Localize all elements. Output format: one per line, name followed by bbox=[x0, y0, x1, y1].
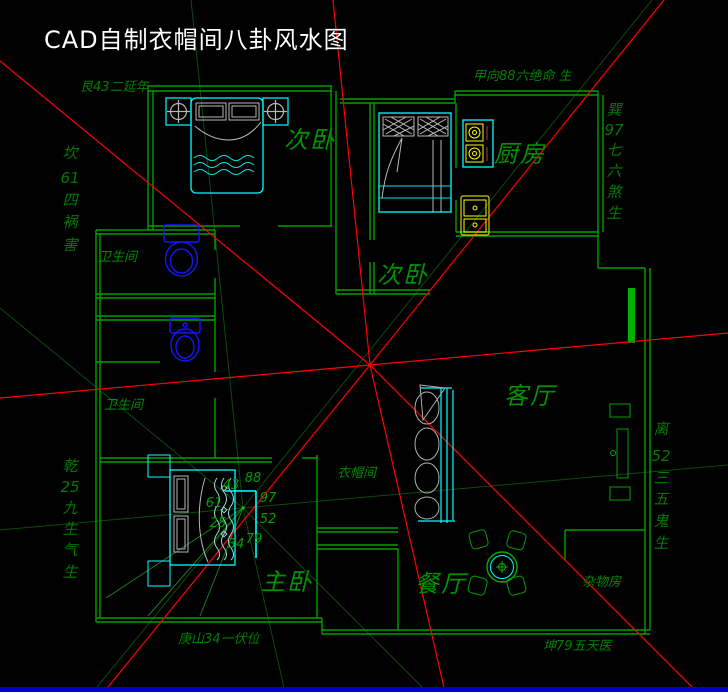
compass-label-li-3: 五 bbox=[653, 490, 669, 508]
room-label-bath-lower: 卫生间 bbox=[104, 398, 145, 413]
bagua-number-34: 34 bbox=[228, 537, 245, 552]
room-label-storage: 杂物房 bbox=[582, 575, 622, 590]
compass-label-li-2: 三 bbox=[653, 469, 669, 487]
room-label-dining: 餐厅 bbox=[415, 570, 469, 598]
compass-label-qian-0: 乾 bbox=[62, 457, 79, 475]
floorplan-canvas[interactable]: 43 88 61 97 25 52 34 79 CAD自制衣帽间八卦风水图 艮4… bbox=[0, 0, 728, 692]
compass-label-xun-2: 七 bbox=[606, 141, 623, 159]
compass-label-kan-1: 61 bbox=[60, 169, 79, 187]
compass-label-li-5: 生 bbox=[653, 534, 669, 552]
compass-label-geng: 庚山34一伏位 bbox=[178, 631, 262, 647]
bagua-number-79: 79 bbox=[246, 532, 263, 547]
bagua-number-43: 43 bbox=[223, 478, 240, 493]
room-label-master: 主卧 bbox=[261, 568, 313, 596]
compass-label-kun: 坤79五天医 bbox=[543, 639, 614, 654]
compass-label-li-4: 鬼 bbox=[653, 512, 669, 530]
room-label-living: 客厅 bbox=[504, 382, 558, 410]
bottom-bar bbox=[0, 687, 728, 692]
compass-label-kan-column: 坎 61 四 祸 害 bbox=[60, 144, 79, 254]
room-label-cloakroom: 衣帽间 bbox=[337, 466, 378, 481]
compass-label-xun-5: 生 bbox=[606, 204, 622, 222]
compass-label-qian-3: 生 bbox=[62, 520, 78, 538]
compass-label-li-1: 52 bbox=[651, 447, 670, 465]
drawing-title: CAD自制衣帽间八卦风水图 bbox=[44, 26, 349, 54]
room-label-bath-upper: 卫生间 bbox=[98, 250, 139, 265]
compass-label-gen: 艮43二延年 bbox=[80, 80, 151, 95]
compass-label-xun-1: 97 bbox=[604, 121, 624, 139]
compass-label-qian-5: 生 bbox=[62, 563, 78, 581]
wall-column bbox=[628, 288, 635, 343]
bagua-number-25: 25 bbox=[210, 516, 227, 531]
compass-label-kan-2: 四 bbox=[62, 191, 79, 209]
bagua-number-61: 61 bbox=[206, 496, 223, 511]
bagua-number-52: 52 bbox=[260, 512, 277, 527]
bagua-number-88: 88 bbox=[245, 471, 262, 486]
compass-label-qian-1: 25 bbox=[60, 478, 79, 496]
room-label-kitchen: 厨房 bbox=[494, 140, 546, 168]
compass-label-kan-3: 祸 bbox=[62, 213, 79, 231]
compass-label-li-0: 离 bbox=[653, 420, 670, 438]
compass-label-xun-3: 六 bbox=[606, 162, 623, 180]
compass-label-xun-0: 巽 bbox=[606, 101, 623, 119]
bagua-number-97: 97 bbox=[260, 491, 277, 506]
compass-label-jia: 甲向88六绝命 生 bbox=[473, 68, 573, 84]
compass-label-qian-2: 九 bbox=[62, 499, 78, 517]
room-label-bedroom-mid: 次卧 bbox=[377, 261, 429, 289]
mini-bagua-center bbox=[241, 506, 244, 509]
compass-label-qian-4: 气 bbox=[62, 541, 79, 559]
compass-label-xun-4: 煞 bbox=[606, 183, 623, 201]
compass-label-kan-4: 害 bbox=[62, 236, 79, 254]
compass-label-kan-0: 坎 bbox=[62, 144, 79, 162]
cad-drawing-window: 43 88 61 97 25 52 34 79 CAD自制衣帽间八卦风水图 艮4… bbox=[0, 0, 728, 692]
room-label-bedroom-top: 次卧 bbox=[284, 126, 336, 154]
